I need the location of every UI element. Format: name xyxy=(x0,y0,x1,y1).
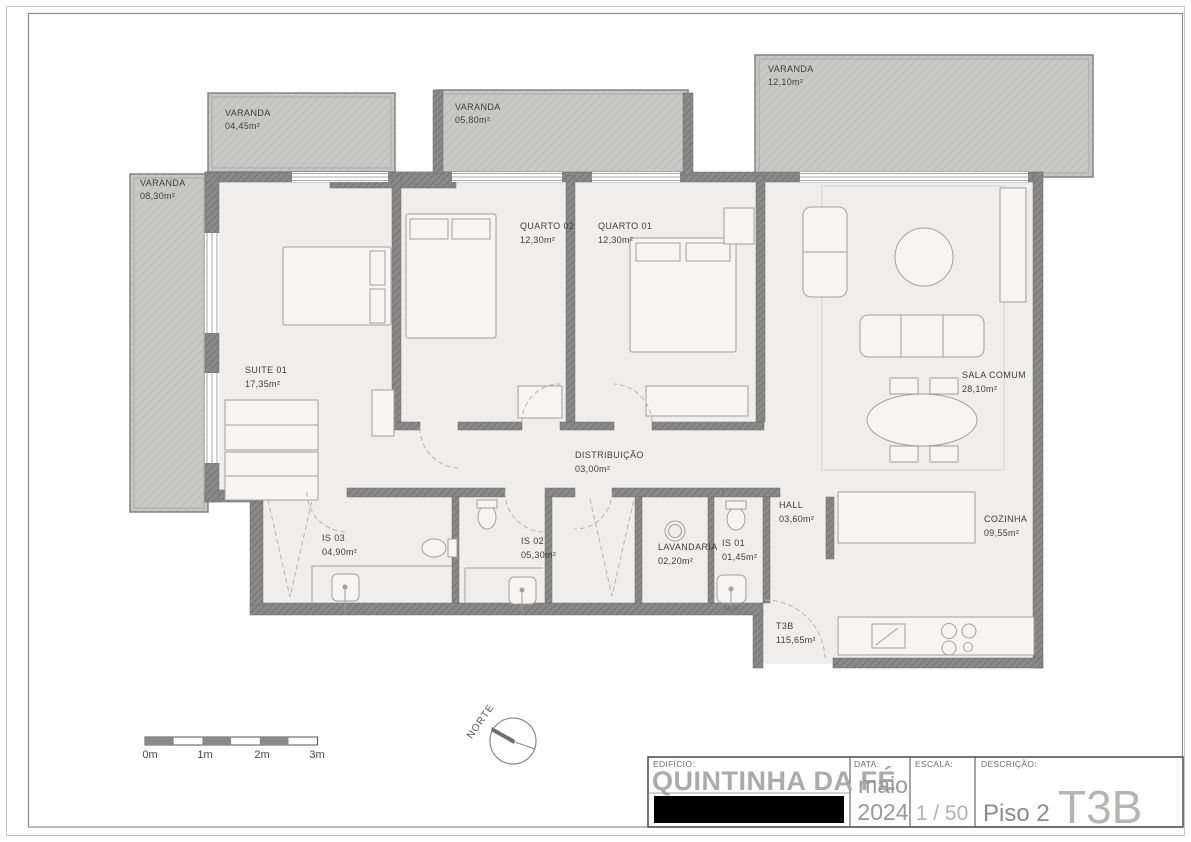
is02-label: IS 02 xyxy=(521,536,544,546)
sideboard xyxy=(1000,188,1026,302)
laundry-label: LAVANDARIA xyxy=(658,542,718,552)
scale-2m: 2m xyxy=(254,749,269,761)
laundry-area: 02,20m² xyxy=(658,556,693,566)
dining-table xyxy=(867,394,977,446)
scale-bar: 0m 1m 2m 3m xyxy=(142,737,324,761)
balcony-left xyxy=(130,174,208,512)
title-block: EDIFÍCIO: QUINTINHA DA FÉ DATA: maio 202… xyxy=(648,757,1183,833)
balcony-top-left-area: 04,45m² xyxy=(225,121,260,131)
is01-area: 01,45m² xyxy=(722,552,757,562)
balcony-top-left-label: VARANDA xyxy=(225,108,271,118)
hall-area: 03,60m² xyxy=(779,514,814,524)
north-label: NORTE xyxy=(465,702,497,741)
bedroom2-label: QUARTO 02 xyxy=(520,221,574,231)
date-year: 2024 xyxy=(857,799,908,825)
north-needle xyxy=(491,727,515,744)
living-room-label: SALA COMUM xyxy=(962,370,1026,380)
round-table xyxy=(895,228,953,286)
appliance-label: MLR xyxy=(724,606,738,613)
kitchen-table xyxy=(838,492,975,543)
floor-plan-drawing: VARANDA 04,45m² VARANDA 05,80m² VARANDA … xyxy=(0,0,1191,842)
toilet-is02 xyxy=(478,505,496,529)
hall-label: HALL xyxy=(779,500,803,510)
suite-bed xyxy=(283,247,391,325)
unit-area: 115,65m² xyxy=(776,635,816,645)
scale-3m: 3m xyxy=(309,749,324,761)
balcony-top-right-area: 12,10m² xyxy=(768,77,803,87)
drawing-sheet: VARANDA 04,45m² VARANDA 05,80m² VARANDA … xyxy=(0,0,1191,842)
hallway-label: DISTRIBUIÇÃO xyxy=(575,450,644,460)
suite-area: 17,35m² xyxy=(245,379,280,389)
bedroom1-label: QUARTO 01 xyxy=(598,221,652,231)
north-arrow: NORTE xyxy=(465,702,536,764)
balcony-top-right-label: VARANDA xyxy=(768,64,814,74)
unit-type-value: T3B xyxy=(1058,781,1142,833)
living-room-area: 28,10m² xyxy=(962,384,997,394)
hallway-area: 03,00m² xyxy=(575,464,610,474)
is03-area: 04,90m² xyxy=(322,547,357,557)
scale-value: 1 / 50 xyxy=(916,802,969,825)
scale-field-label: ESCALA: xyxy=(915,759,953,769)
balcony-top-middle-area: 05,80m² xyxy=(455,115,490,125)
balcony-top-middle-label: VARANDA xyxy=(455,102,501,112)
date-field-label: DATA: xyxy=(854,759,879,769)
kitchen-label: COZINHA xyxy=(984,514,1027,524)
is02-area: 05,30m² xyxy=(521,550,556,560)
is01-label: IS 01 xyxy=(722,538,745,548)
unit-label: T3B xyxy=(776,621,794,631)
is03-label: IS 03 xyxy=(322,533,345,543)
bedroom2-area: 12,30m² xyxy=(520,235,555,245)
suite-label: SUITE 01 xyxy=(245,365,287,375)
toilet-is03 xyxy=(422,539,446,557)
date-month: maio xyxy=(858,772,908,798)
kitchen-area: 09,55m² xyxy=(984,528,1019,538)
scale-0m: 0m xyxy=(142,749,157,761)
bedroom1-area: 12,30m² xyxy=(598,235,633,245)
balcony-top-left xyxy=(208,93,395,172)
balcony-left-label: VARANDA xyxy=(140,178,186,188)
floor-value: Piso 2 xyxy=(983,800,1050,827)
balcony-left-area: 08,30m² xyxy=(140,191,175,201)
sofa-three-seat xyxy=(860,315,984,357)
redacted-box xyxy=(654,796,844,823)
toilet-is01 xyxy=(727,508,745,530)
kitchen-counter xyxy=(838,617,1034,655)
description-field-label: DESCRIÇÃO: xyxy=(981,759,1037,769)
scale-1m: 1m xyxy=(197,749,212,761)
